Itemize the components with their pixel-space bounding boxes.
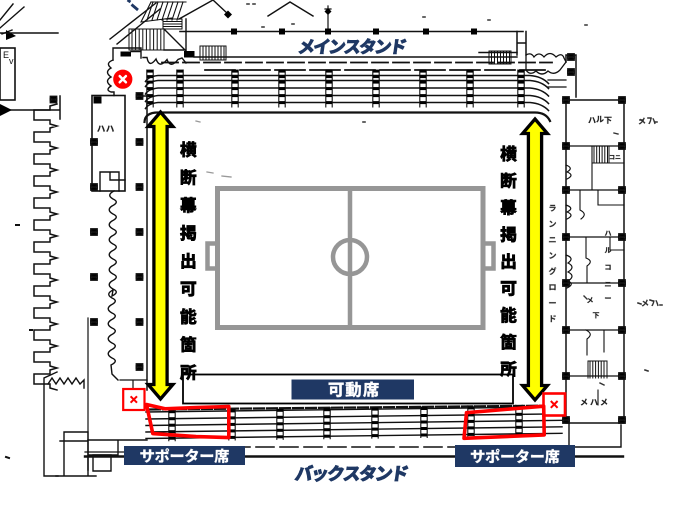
svg-text:v: v bbox=[9, 56, 14, 66]
